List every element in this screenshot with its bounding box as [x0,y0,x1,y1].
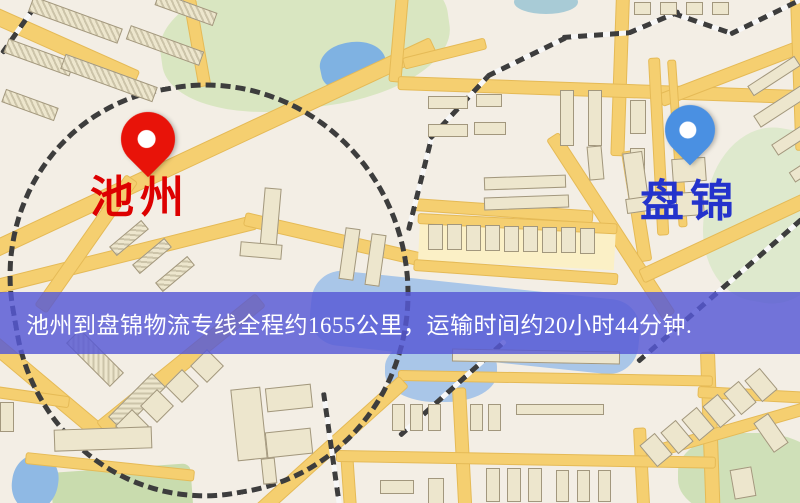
building [504,226,519,252]
building [587,145,605,180]
origin-label: 池州 [90,176,190,220]
building [428,224,443,250]
building [54,426,153,451]
building [392,404,405,431]
building [1,89,58,121]
building [577,470,590,502]
building [447,224,462,250]
building [588,90,602,146]
building [470,404,483,431]
building [516,404,604,415]
building [428,478,444,503]
building [466,225,481,251]
route-info-banner: 池州到盘锦物流专线全程约1655公里，运输时间约20小时44分钟. [0,292,800,354]
building [488,404,501,431]
building [542,227,557,253]
building [634,2,651,15]
building [598,470,611,502]
building [265,428,313,459]
building [523,226,538,252]
building [380,480,414,494]
building [560,90,574,146]
railway [729,0,800,36]
park-area [514,0,578,14]
building [486,468,500,502]
building [428,96,468,109]
road [610,0,630,156]
building [561,227,576,253]
building [484,175,566,191]
building [410,404,423,431]
building [507,468,521,502]
map-canvas: 池州 盘锦 池州到盘锦物流专线全程约1655公里，运输时间约20小时44分钟. [0,0,800,503]
building [580,228,595,254]
building [474,122,506,135]
building [630,100,646,134]
building [428,124,468,137]
building [0,402,14,432]
building [556,470,569,502]
railway [486,35,567,78]
building [428,404,441,431]
building [265,384,313,413]
building [686,2,703,15]
building [476,94,502,107]
building [485,225,500,251]
route-info-text: 池州到盘锦物流专线全程约1655公里，运输时间约20小时44分钟. [0,306,692,340]
destination-label: 盘锦 [640,180,740,224]
building [660,2,677,15]
building [528,468,542,502]
building [712,2,729,15]
building [261,457,278,484]
